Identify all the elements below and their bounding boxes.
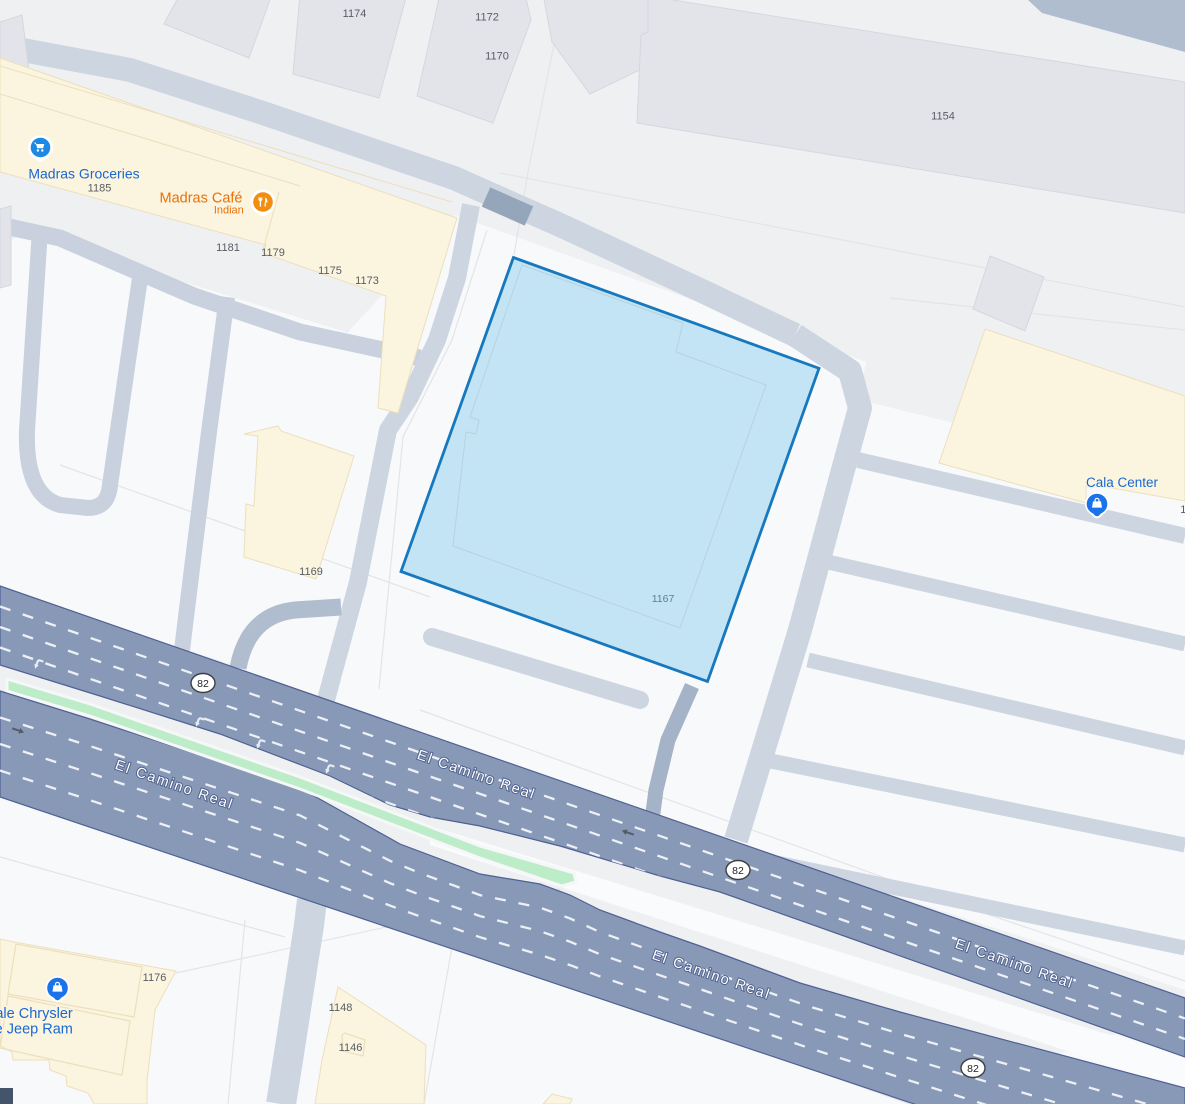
svg-text:11: 11: [1180, 504, 1185, 516]
svg-text:Sunnyvale Chrysler: Sunnyvale Chrysler: [0, 1006, 73, 1022]
svg-text:1146: 1146: [339, 1042, 363, 1054]
svg-text:1179: 1179: [261, 247, 285, 259]
svg-text:1167: 1167: [652, 593, 675, 605]
svg-text:1170: 1170: [485, 51, 509, 63]
svg-text:1174: 1174: [343, 8, 367, 20]
svg-text:Dodge Jeep Ram: Dodge Jeep Ram: [0, 1022, 73, 1038]
svg-text:1148: 1148: [329, 1002, 353, 1014]
svg-text:Cala Center: Cala Center: [1086, 475, 1159, 490]
svg-text:Madras Groceries: Madras Groceries: [28, 166, 139, 182]
svg-text:1172: 1172: [475, 12, 499, 24]
svg-text:1154: 1154: [931, 111, 955, 123]
svg-text:1181: 1181: [216, 242, 240, 254]
svg-text:1185: 1185: [88, 183, 112, 195]
svg-text:1169: 1169: [299, 566, 323, 578]
svg-text:82: 82: [967, 1063, 979, 1075]
svg-text:1175: 1175: [318, 265, 342, 277]
svg-text:82: 82: [732, 865, 744, 877]
svg-text:Indian: Indian: [214, 205, 244, 217]
svg-text:1176: 1176: [143, 972, 167, 984]
svg-text:1173: 1173: [355, 275, 379, 287]
svg-text:82: 82: [197, 678, 209, 690]
